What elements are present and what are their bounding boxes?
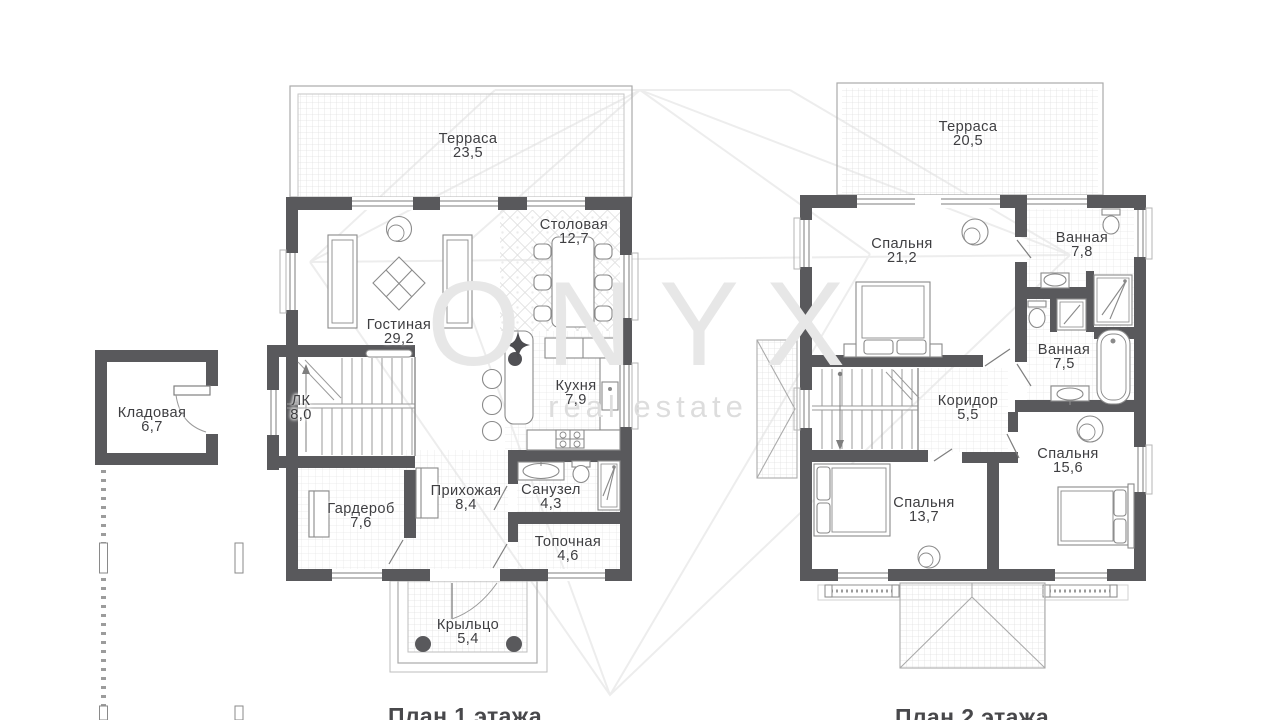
- room-label: Прихожая8,4: [431, 485, 502, 513]
- room-label: Кладовая6,7: [118, 407, 187, 435]
- room-label: Ванная7,8: [1056, 232, 1108, 260]
- floor1-dining-furniture: [534, 237, 612, 327]
- floor1-caption: План 1 этажа: [388, 703, 542, 720]
- room-label: Спальня15,6: [1037, 448, 1098, 476]
- room-label: Кухня7,9: [555, 380, 596, 408]
- room-label: Терраса20,5: [939, 121, 998, 149]
- site-fence: [100, 470, 244, 720]
- room-label: Крыльцо5,4: [437, 619, 499, 647]
- room-label: Терраса23,5: [439, 133, 498, 161]
- room-label: Гардероб7,6: [327, 503, 394, 531]
- room-label: Санузел4,3: [521, 484, 581, 512]
- room-label: Спальня21,2: [871, 238, 932, 266]
- room-label: ЛК8,0: [290, 395, 312, 423]
- room-label: Гостиная29,2: [367, 319, 431, 347]
- floor2-bedroom2-furniture: [1058, 416, 1134, 548]
- room-label: Столовая12,7: [540, 219, 608, 247]
- floorplan-canvas: ONYX real estate Терраса23,5Столовая12,7…: [0, 0, 1280, 720]
- floor2-caption: План 2 этажа: [895, 704, 1049, 720]
- floor2-stairs: [812, 368, 919, 450]
- floor2-plan: [757, 83, 1152, 668]
- room-label: Топочная4,6: [535, 536, 601, 564]
- room-label: Коридор5,5: [938, 395, 998, 423]
- room-label: Ванная7,5: [1038, 344, 1090, 372]
- room-label: Спальня13,7: [893, 497, 954, 525]
